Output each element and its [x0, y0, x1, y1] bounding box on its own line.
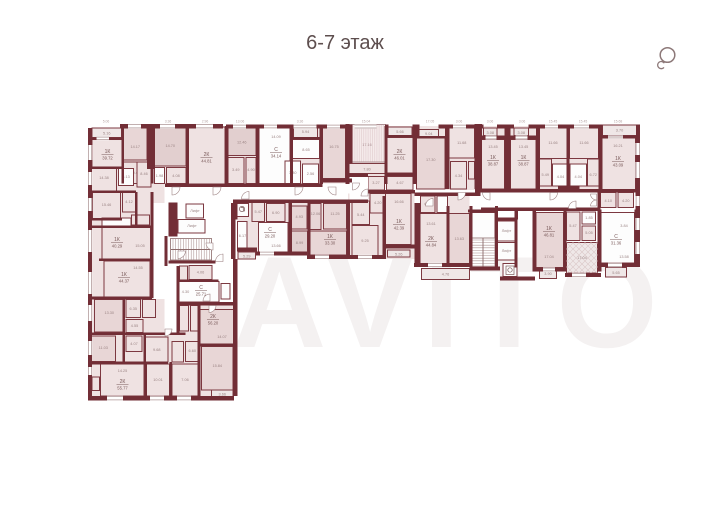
- svg-text:2К: 2К: [120, 379, 126, 385]
- svg-text:17.05: 17.05: [426, 120, 435, 124]
- svg-text:15.45: 15.45: [549, 120, 558, 124]
- svg-text:14.09: 14.09: [271, 135, 281, 139]
- svg-text:15.04: 15.04: [362, 120, 371, 124]
- svg-text:4.90: 4.90: [247, 168, 254, 172]
- svg-text:14.17: 14.17: [130, 145, 140, 149]
- svg-text:1К: 1К: [327, 234, 333, 240]
- svg-text:13.45: 13.45: [519, 145, 529, 149]
- svg-text:5.06: 5.06: [103, 120, 110, 124]
- svg-text:2.56: 2.56: [307, 172, 314, 176]
- svg-text:5.16: 5.16: [103, 132, 110, 136]
- svg-text:44.84: 44.84: [426, 243, 437, 248]
- svg-text:5.47: 5.47: [255, 210, 262, 214]
- svg-text:4.76: 4.76: [442, 273, 449, 277]
- svg-text:2.96: 2.96: [202, 120, 209, 124]
- svg-text:31.36: 31.36: [611, 241, 622, 246]
- svg-text:33.30: 33.30: [325, 241, 336, 246]
- svg-text:4.67: 4.67: [396, 181, 403, 185]
- svg-text:16.75: 16.75: [329, 145, 339, 149]
- svg-text:12.06: 12.06: [311, 212, 321, 216]
- svg-text:12.46: 12.46: [237, 140, 247, 144]
- svg-text:3.06: 3.06: [456, 120, 463, 124]
- svg-text:3.08: 3.08: [487, 131, 494, 135]
- svg-text:11.68: 11.68: [457, 141, 466, 145]
- svg-text:16.66: 16.66: [394, 200, 404, 204]
- svg-text:3.70: 3.70: [616, 129, 623, 133]
- svg-text:5.66: 5.66: [396, 130, 403, 134]
- svg-text:44.37: 44.37: [119, 279, 130, 284]
- svg-text:15.45: 15.45: [579, 120, 588, 124]
- svg-text:3.27: 3.27: [372, 181, 379, 185]
- svg-text:7.80: 7.80: [363, 168, 370, 172]
- svg-text:11.66: 11.66: [579, 141, 588, 145]
- svg-text:1.98: 1.98: [156, 174, 163, 178]
- svg-text:3.36: 3.36: [297, 120, 304, 124]
- svg-text:Лифт: Лифт: [187, 224, 197, 228]
- svg-text:4.10: 4.10: [605, 199, 612, 203]
- svg-text:5.05: 5.05: [585, 231, 592, 235]
- svg-text:46.01: 46.01: [394, 156, 405, 161]
- svg-text:Лифт: Лифт: [502, 249, 512, 253]
- svg-text:6.17: 6.17: [239, 234, 246, 238]
- svg-text:5.26: 5.26: [395, 253, 402, 257]
- svg-text:38.87: 38.87: [518, 162, 529, 167]
- svg-text:14.38: 14.38: [99, 176, 109, 180]
- svg-text:11.25: 11.25: [330, 212, 339, 216]
- svg-text:Лифт: Лифт: [502, 229, 512, 233]
- svg-text:15.84: 15.84: [212, 364, 222, 368]
- svg-text:38.87: 38.87: [488, 162, 499, 167]
- svg-text:3.49: 3.49: [232, 168, 239, 172]
- svg-text:4.12: 4.12: [125, 200, 132, 204]
- svg-text:4.08: 4.08: [172, 174, 179, 178]
- svg-text:С: С: [274, 147, 278, 153]
- svg-text:13.06: 13.06: [236, 120, 245, 124]
- svg-text:39.72: 39.72: [102, 156, 113, 161]
- svg-text:44.81: 44.81: [201, 159, 212, 164]
- svg-text:6.90: 6.90: [272, 211, 279, 215]
- svg-text:4.06: 4.06: [197, 271, 204, 275]
- svg-text:С: С: [268, 227, 272, 233]
- svg-text:4.93: 4.93: [296, 215, 303, 219]
- svg-text:8.99: 8.99: [296, 241, 303, 245]
- svg-text:56.20: 56.20: [208, 321, 219, 326]
- svg-text:3.36: 3.36: [165, 120, 172, 124]
- svg-text:1.85: 1.85: [585, 216, 592, 220]
- svg-text:10.01: 10.01: [153, 378, 163, 382]
- svg-text:1К: 1К: [521, 155, 527, 161]
- svg-text:6.60: 6.60: [189, 349, 196, 353]
- svg-text:3.06: 3.06: [487, 120, 494, 124]
- svg-text:11.03: 11.03: [99, 346, 108, 350]
- svg-text:3.08: 3.08: [518, 131, 525, 135]
- svg-text:2К: 2К: [204, 152, 210, 158]
- svg-text:С: С: [614, 234, 618, 240]
- svg-text:9.25: 9.25: [361, 239, 368, 243]
- svg-text:42.39: 42.39: [394, 226, 405, 231]
- svg-text:6.35: 6.35: [130, 307, 137, 311]
- svg-text:5.29: 5.29: [243, 255, 250, 259]
- svg-text:13.30: 13.30: [104, 311, 114, 315]
- svg-text:11.66: 11.66: [548, 141, 557, 145]
- svg-text:2К: 2К: [210, 314, 216, 320]
- svg-text:43.09: 43.09: [613, 163, 624, 168]
- svg-text:14.25: 14.25: [118, 369, 128, 373]
- svg-text:5.94: 5.94: [302, 130, 309, 134]
- svg-text:5.65: 5.65: [612, 271, 619, 275]
- svg-text:14.07: 14.07: [217, 335, 227, 339]
- svg-text:1К: 1К: [105, 149, 111, 155]
- svg-text:13.61: 13.61: [426, 222, 436, 226]
- svg-text:5.49: 5.49: [542, 173, 549, 177]
- svg-text:1К: 1К: [546, 226, 552, 232]
- svg-text:13.58: 13.58: [619, 255, 629, 259]
- svg-text:7.06: 7.06: [181, 378, 188, 382]
- svg-text:1К: 1К: [121, 272, 127, 278]
- svg-text:17.04: 17.04: [577, 256, 587, 260]
- svg-text:1К: 1К: [490, 155, 496, 161]
- svg-text:1К: 1К: [615, 156, 621, 162]
- svg-text:13.63: 13.63: [454, 237, 464, 241]
- svg-text:40.29: 40.29: [112, 244, 123, 249]
- svg-text:13.66: 13.66: [271, 244, 281, 248]
- svg-text:46.81: 46.81: [544, 233, 555, 238]
- svg-text:4.07: 4.07: [130, 342, 137, 346]
- svg-text:6-7 этаж: 6-7 этаж: [306, 32, 384, 54]
- svg-text:3.66: 3.66: [219, 393, 226, 397]
- svg-text:13.45: 13.45: [488, 145, 498, 149]
- svg-text:8.65: 8.65: [302, 148, 309, 152]
- svg-text:2К: 2К: [397, 149, 403, 155]
- svg-text:29.20: 29.20: [265, 234, 276, 239]
- svg-text:14.70: 14.70: [165, 144, 175, 148]
- svg-text:34.14: 34.14: [271, 154, 282, 159]
- svg-text:5.47: 5.47: [569, 224, 576, 228]
- svg-text:17.04: 17.04: [544, 255, 554, 259]
- svg-text:4.34: 4.34: [455, 174, 462, 178]
- svg-text:5.44: 5.44: [357, 213, 364, 217]
- svg-text:9.04: 9.04: [425, 132, 432, 136]
- svg-text:1К: 1К: [396, 219, 402, 225]
- svg-text:3.90: 3.90: [544, 272, 551, 276]
- svg-text:4.20: 4.20: [374, 201, 381, 205]
- svg-text:4.30: 4.30: [182, 290, 189, 294]
- svg-text:14.55: 14.55: [133, 266, 143, 270]
- svg-text:С: С: [199, 285, 203, 291]
- svg-text:15.46: 15.46: [102, 203, 112, 207]
- svg-text:15.68: 15.68: [614, 120, 623, 124]
- svg-text:6.72: 6.72: [590, 173, 597, 177]
- svg-text:1К: 1К: [114, 237, 120, 243]
- svg-text:4.04: 4.04: [557, 175, 564, 179]
- svg-text:8.46: 8.46: [140, 172, 147, 176]
- svg-text:17.30: 17.30: [426, 158, 436, 162]
- svg-text:2К: 2К: [428, 236, 434, 242]
- svg-text:3.06: 3.06: [519, 120, 526, 124]
- svg-text:16.21: 16.21: [613, 144, 623, 148]
- svg-text:15.05: 15.05: [135, 244, 145, 248]
- svg-text:4.20: 4.20: [622, 199, 629, 203]
- svg-text:4.04: 4.04: [575, 175, 582, 179]
- svg-text:9.68: 9.68: [153, 348, 160, 352]
- svg-text:55.77: 55.77: [117, 386, 128, 391]
- svg-text:3.84: 3.84: [620, 224, 627, 228]
- svg-text:17.16: 17.16: [362, 143, 372, 147]
- svg-text:Лифт: Лифт: [190, 209, 200, 213]
- svg-text:4.55: 4.55: [131, 324, 138, 328]
